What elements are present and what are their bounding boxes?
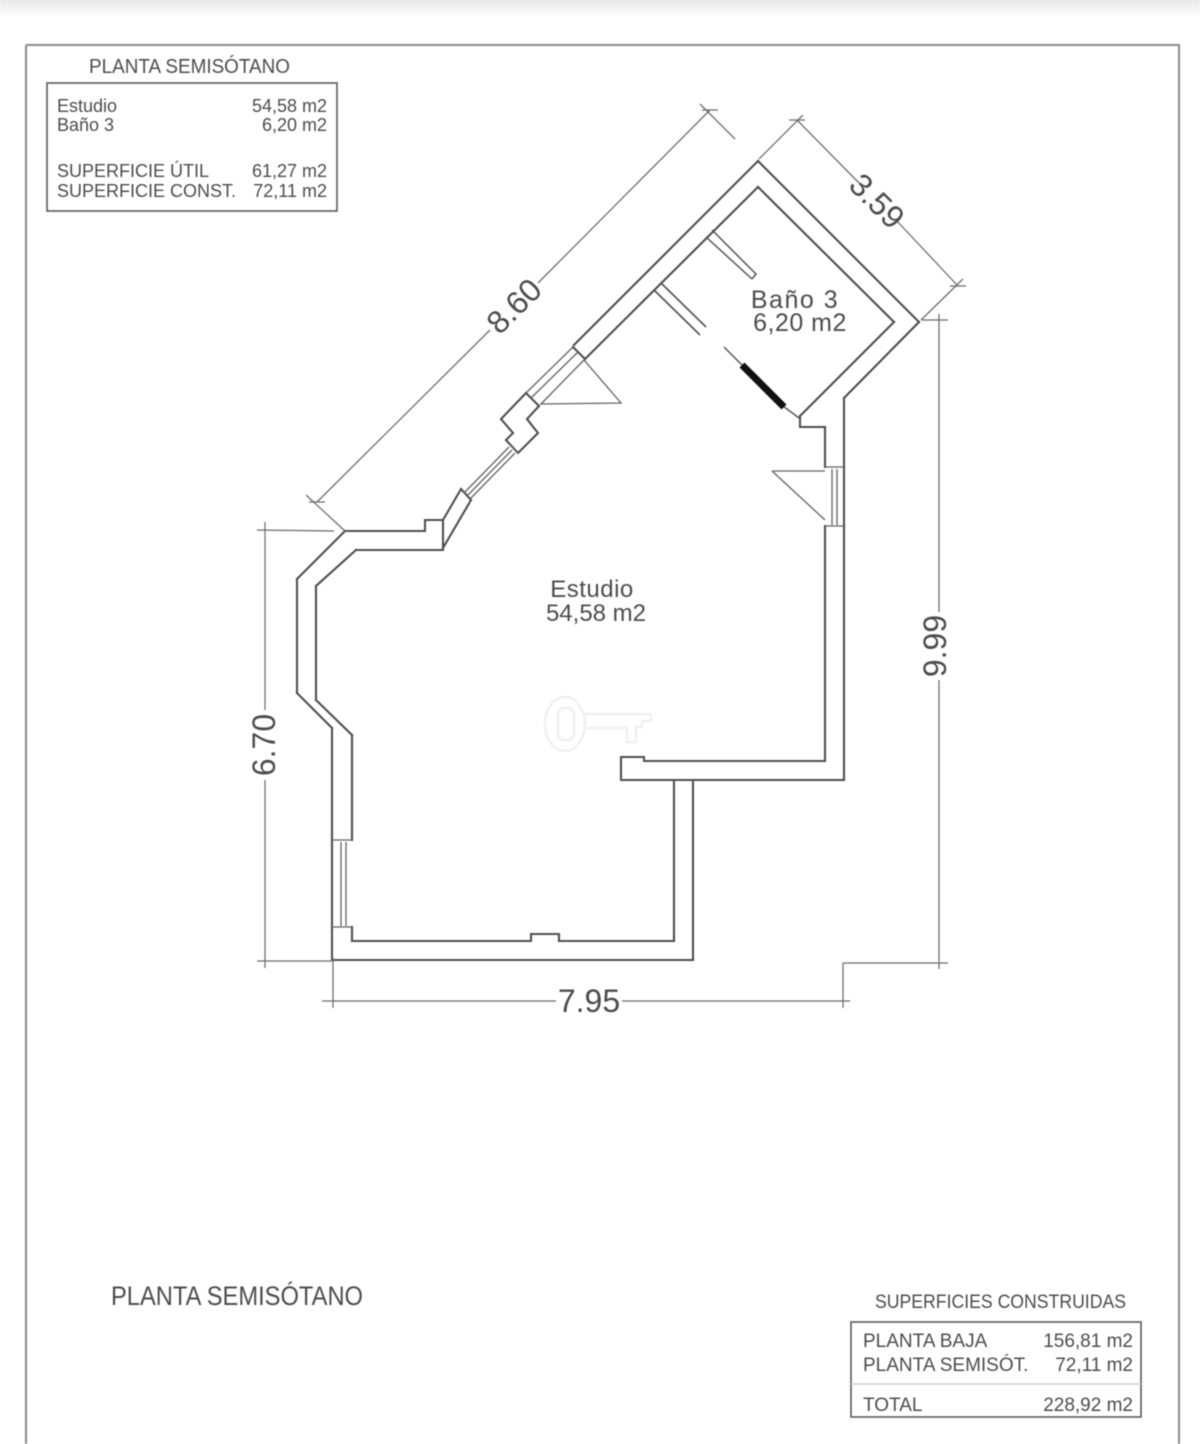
svg-text:TOTAL: TOTAL [863,1395,922,1416]
svg-text:Estudio: Estudio [57,96,117,116]
svg-text:SUPERFICIE CONST.: SUPERFICIE CONST. [57,181,236,201]
svg-text:Baño 3: Baño 3 [57,115,114,135]
svg-text:PLANTA SEMISÓTANO: PLANTA SEMISÓTANO [111,1280,363,1311]
svg-text:228,92 m2: 228,92 m2 [1043,1395,1133,1416]
svg-text:61,27 m2: 61,27 m2 [252,161,327,181]
svg-text:7.95: 7.95 [558,983,620,1019]
svg-text:6.70: 6.70 [246,714,282,776]
svg-text:72,11 m2: 72,11 m2 [1055,1355,1133,1376]
svg-text:72,11 m2: 72,11 m2 [253,181,327,201]
svg-text:54,58 m2: 54,58 m2 [252,96,327,116]
svg-text:SUPERFICIES CONSTRUIDAS: SUPERFICIES CONSTRUIDAS [875,1292,1126,1313]
svg-text:6,20 m2: 6,20 m2 [262,115,327,135]
svg-text:9.99: 9.99 [917,615,953,677]
svg-text:6,20 m2: 6,20 m2 [753,309,847,337]
svg-text:PLANTA BAJA: PLANTA BAJA [863,1331,988,1352]
svg-text:SUPERFICIE ÚTIL: SUPERFICIE ÚTIL [57,160,209,181]
svg-text:54,58 m2: 54,58 m2 [546,600,646,627]
svg-text:Estudio: Estudio [550,576,634,603]
svg-text:PLANTA SEMISÓTANO: PLANTA SEMISÓTANO [89,55,290,78]
svg-text:PLANTA SEMISÓT.: PLANTA SEMISÓT. [863,1354,1028,1376]
svg-text:156,81 m2: 156,81 m2 [1043,1331,1133,1352]
